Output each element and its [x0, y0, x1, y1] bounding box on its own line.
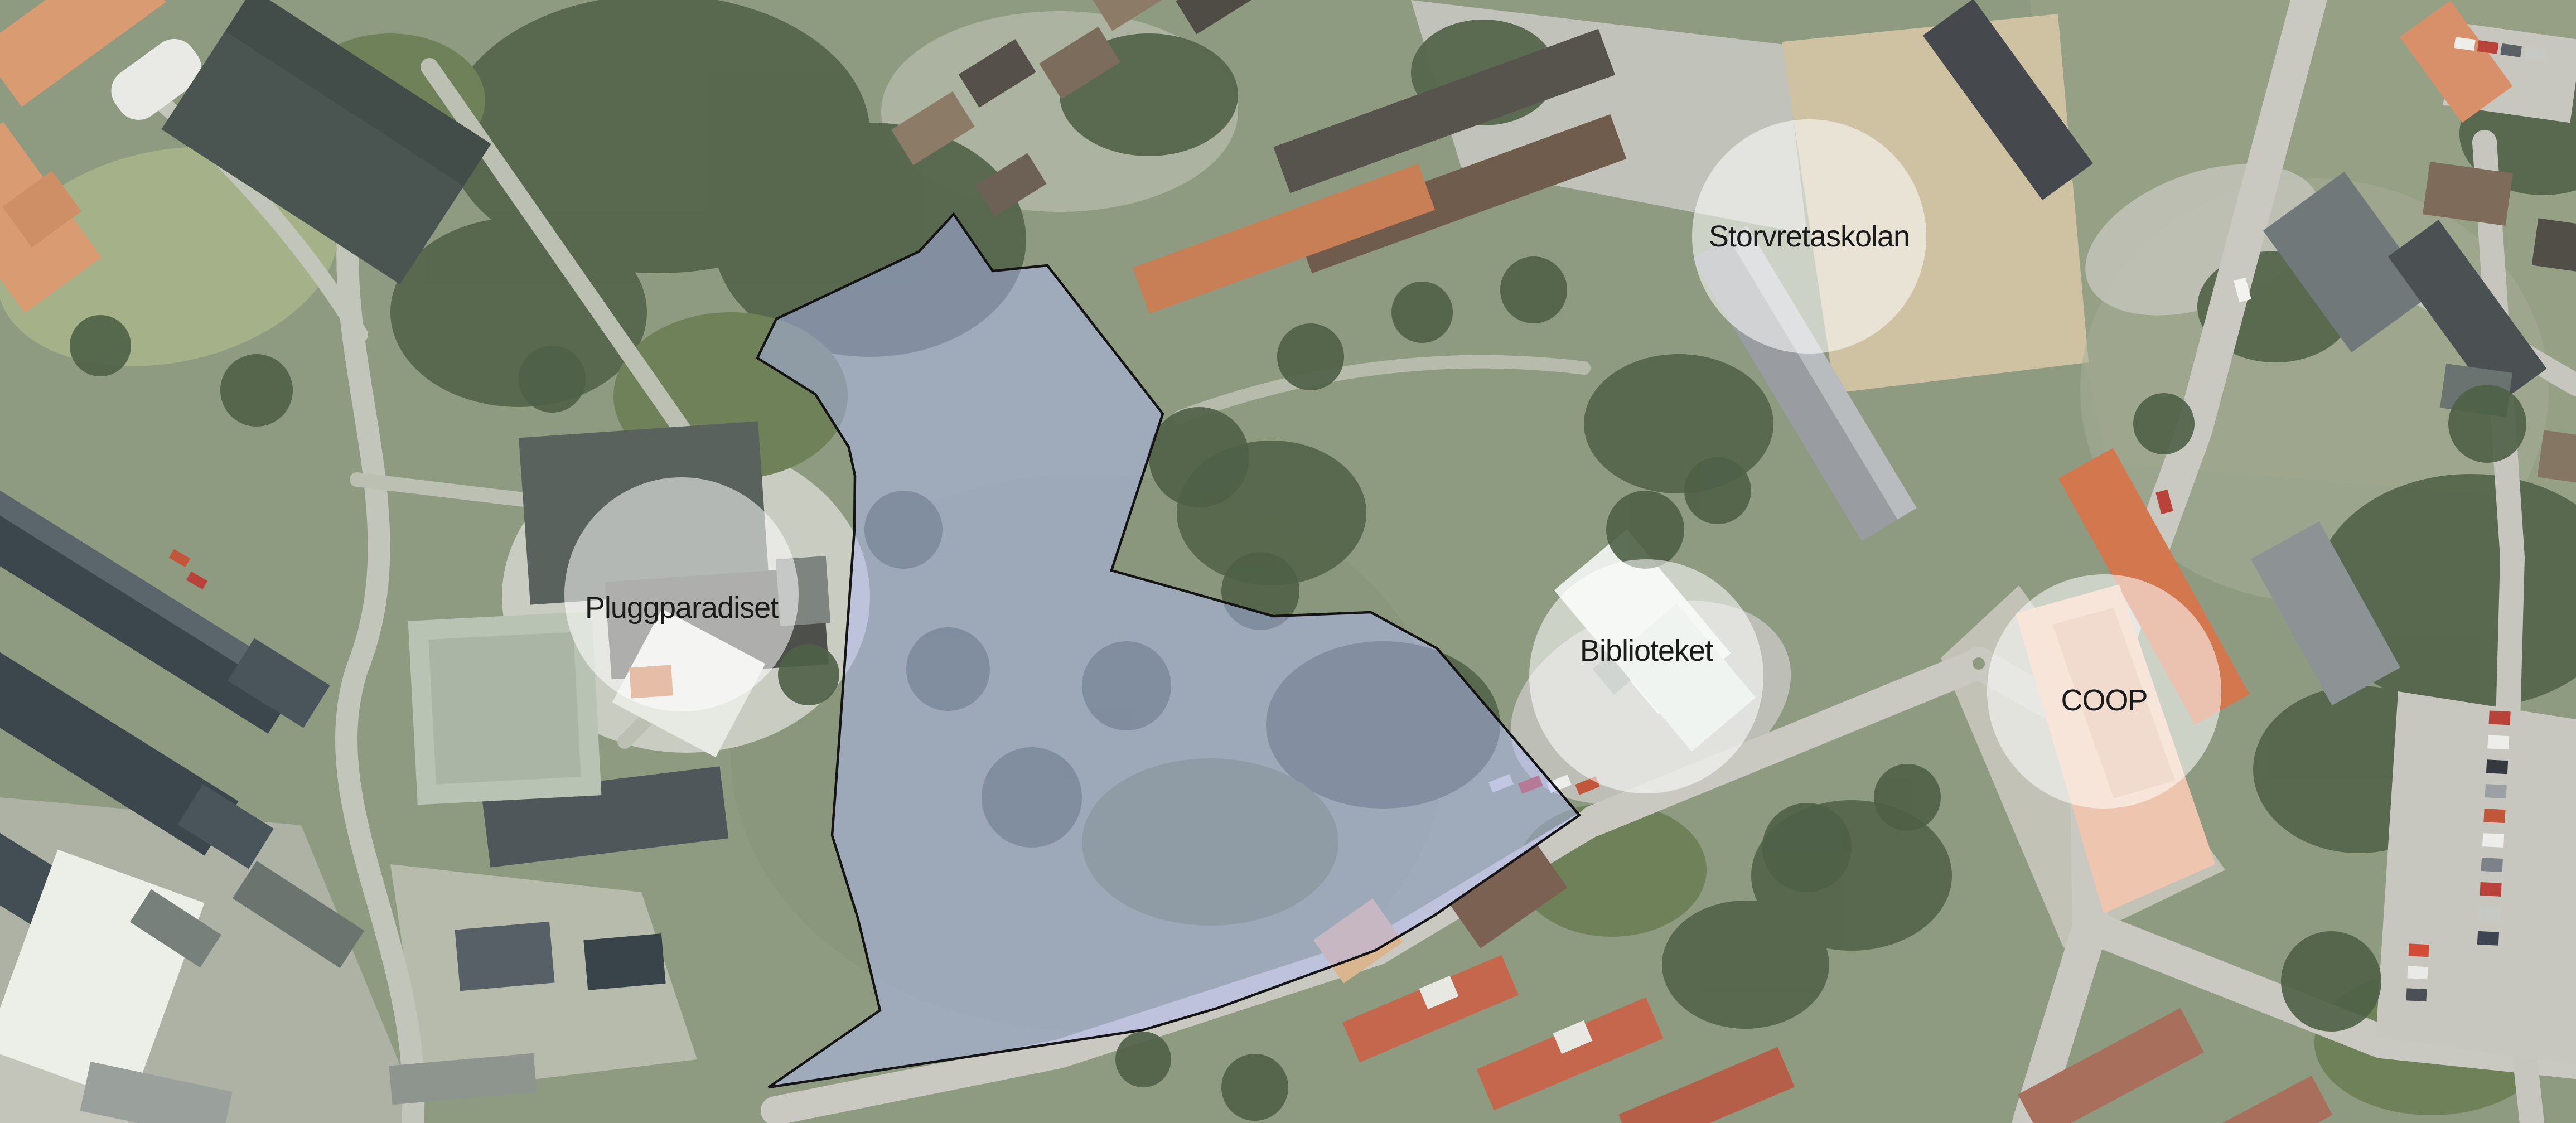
highlight-overlay — [0, 0, 2576, 1123]
highlighted-area-polygon — [757, 214, 1579, 1087]
aerial-map: Pluggparadiset Storvretaskolan Bibliotek… — [0, 0, 2576, 1123]
